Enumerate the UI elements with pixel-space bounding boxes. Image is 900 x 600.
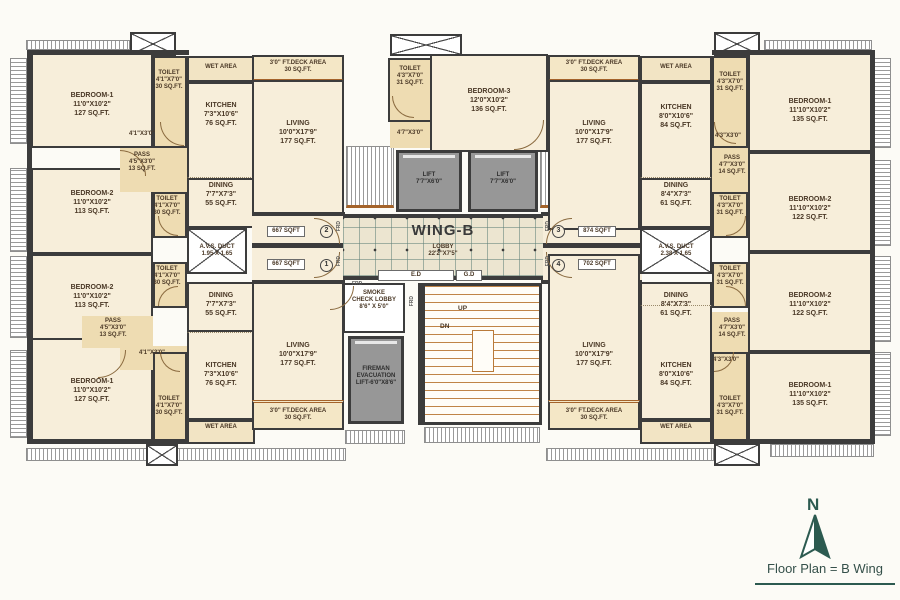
north-arrow-icon <box>795 513 835 559</box>
room-label: BEDROOM-111'0"X10'2"127 SQ.FT. <box>38 92 146 118</box>
chajja-hatch <box>424 427 540 443</box>
room-label: TOILET4'3"X7'0"31 SQ.FT. <box>706 266 754 288</box>
room-label: PASS4'7"X3'0"14 SQ.FT. <box>710 318 754 340</box>
frd-label: FRD <box>545 256 551 266</box>
fireman-lift-label: FIREMANEVACUATIONLIFT-6'0"X8'6" <box>346 366 406 388</box>
flat-area-tag: 667 SQFT <box>267 226 305 237</box>
room-living-left-top <box>252 80 344 230</box>
room-label: TOILET4'1"X7'0"30 SQ.FT. <box>142 70 196 92</box>
room-label: PASS4'5"X3'0"13 SQ.FT. <box>80 318 146 340</box>
room-living-right-top <box>548 80 640 230</box>
room-label: LIVING10'0"X17'9"177 SQ.FT. <box>548 120 640 146</box>
room-label: TOILET4'3"X7'0"31 SQ.FT. <box>706 396 754 418</box>
flat-area-tag: 667 SQFT <box>267 259 305 270</box>
room-label: WET AREA <box>187 64 255 71</box>
stair-landing <box>472 330 494 372</box>
compass-north-letter: N <box>807 495 819 515</box>
room-label: LIVING10'0"X17'9"177 SQ.FT. <box>548 342 640 368</box>
lift-label: LIFT7'7"X6'0" <box>470 172 536 186</box>
wall <box>712 439 875 444</box>
wall <box>418 283 423 425</box>
passage-label: 4'3"X3'0" <box>700 133 756 140</box>
room-label: LIVING10'0"X17'9"177 SQ.FT. <box>252 342 344 368</box>
room-label: TOILET4'3"X7'0"31 SQ.FT. <box>706 72 754 94</box>
vent-shaft <box>390 34 462 56</box>
room-label: DINING8'4"X7'3"61 SQ.FT. <box>640 182 712 208</box>
passage-label: 4'1"X3'0" <box>112 131 172 138</box>
room-label: BEDROOM-111'0"X10'2"127 SQ.FT. <box>38 378 146 404</box>
flat-number-badge: 3 <box>552 225 565 238</box>
duct-label: A.V.S. DUCT1.95 X 1.65 <box>184 244 250 258</box>
deck-label: 3'0" FT.DECK AREA30 SQ.FT. <box>252 408 344 422</box>
balcony-hatch <box>10 168 27 252</box>
chajja-hatch <box>770 444 874 457</box>
room-label: DINING7'7"X7'3"55 SQ.FT. <box>187 292 255 318</box>
flat-number-badge: 4 <box>552 259 565 272</box>
entry-corridor-left <box>252 212 345 284</box>
room-label: KITCHEN8'0"X10'6"84 SQ.FT. <box>640 362 712 388</box>
room-label: KITCHEN7'3"X10'6"76 SQ.FT. <box>187 102 255 128</box>
garbage-duct-tag: G.D <box>456 270 482 281</box>
room-label: WET AREA <box>640 64 712 71</box>
room-label: BEDROOM-111'10"X10'2"135 SQ.FT. <box>755 382 865 408</box>
passage-label: 4'7"X3'0" <box>386 130 434 137</box>
frd-label: FRD <box>352 281 362 287</box>
room-label: TOILET4'3"X7'0"31 SQ.FT. <box>386 66 434 88</box>
frd-label: FRD <box>336 256 342 266</box>
stair-dn-label: DN <box>440 323 449 330</box>
flat-number-badge: 2 <box>320 225 333 238</box>
floor-plan-canvas: BEDROOM-111'0"X10'2"127 SQ.FT. BEDROOM-2… <box>0 0 900 600</box>
deck-label: 3'0" FT.DECK AREA30 SQ.FT. <box>548 408 640 422</box>
room-label: PASS4'5"X3'0"13 SQ.FT. <box>112 152 172 174</box>
deck-label: 3'0" FT.DECK AREA30 SQ.FT. <box>252 60 344 74</box>
chajja-hatch <box>26 40 130 50</box>
room-label: WET AREA <box>640 424 712 431</box>
compass-block: N Floor Plan = B Wing <box>755 495 895 595</box>
lift-label: LIFT7'7"X6'0" <box>398 172 460 186</box>
electrical-duct-tag: E.D <box>378 270 454 281</box>
vent-shaft <box>146 444 178 466</box>
lobby-title: WING-B <box>353 222 533 241</box>
room-label: DINING7'7"X7'3"55 SQ.FT. <box>187 182 255 208</box>
wall <box>712 50 875 55</box>
room-label: BEDROOM-211'0"X10'2"113 SQ.FT. <box>38 284 146 310</box>
room-kitchen-left-top <box>187 82 255 178</box>
caption-underline <box>755 583 895 585</box>
room-label: DINING8'4"X7'3"61 SQ.FT. <box>640 292 712 318</box>
balcony-hatch <box>874 160 891 246</box>
balcony-hatch <box>874 352 891 436</box>
room-label: PASS4'7"X3'0"14 SQ.FT. <box>710 155 754 177</box>
wall <box>27 50 189 55</box>
flat-area-tag: 702 SQFT <box>578 259 616 270</box>
room-label: SMOKECHECK LOBBY8'6" X 5'0" <box>341 290 407 312</box>
duct-label: A.V.S. DUCT2.38 X 1.65 <box>640 244 712 258</box>
room-label: KITCHEN8'0"X10'6"84 SQ.FT. <box>640 104 712 130</box>
passage-label: 4'1"X3'0" <box>122 350 182 357</box>
stair-up-label: UP <box>458 305 467 312</box>
wall <box>870 50 875 444</box>
balcony-hatch <box>10 350 27 438</box>
room-label: BEDROOM-111'10"X10'2"135 SQ.FT. <box>755 98 865 124</box>
room-label: KITCHEN7'3"X10'6"76 SQ.FT. <box>187 362 255 388</box>
room-label: TOILET4'3"X7'0"31 SQ.FT. <box>706 196 754 218</box>
flat-area-tag: 874 SQFT <box>578 226 616 237</box>
shaft-hatch <box>346 146 394 208</box>
deck-label: 3'0" FT.DECK AREA30 SQ.FT. <box>548 60 640 74</box>
room-label: BEDROOM-211'0"X10'2"113 SQ.FT. <box>38 190 146 216</box>
chajja-hatch <box>764 40 872 50</box>
vent-shaft <box>714 443 760 466</box>
room-label: BEDROOM-211'10"X10'2"122 SQ.FT. <box>755 292 865 318</box>
wall <box>27 439 189 444</box>
shaft-hatch <box>345 430 405 444</box>
balcony-hatch <box>874 58 891 148</box>
chajja-hatch <box>546 448 714 461</box>
room-label: TOILET4'1"X7'0"30 SQ.FT. <box>142 396 196 418</box>
room-label: BEDROOM-211'10"X10'2"122 SQ.FT. <box>755 196 865 222</box>
lobby-label: LOBBY22'2"X7'5" <box>353 244 533 258</box>
room-label: TOILET4'1"X7'0"30 SQ.FT. <box>140 266 194 288</box>
room-label: TOILET4'1"X7'0"30 SQ.FT. <box>140 196 194 218</box>
frd-label: FRD <box>545 221 551 231</box>
frd-label: FRD <box>336 221 342 231</box>
balcony-hatch <box>10 256 27 338</box>
chajja-hatch <box>26 448 346 461</box>
wall <box>27 50 32 444</box>
room-label: LIVING10'0"X17'9"177 SQ.FT. <box>252 120 344 146</box>
room-label: BEDROOM-312'0"X10'2"136 SQ.FT. <box>434 88 544 114</box>
balcony-hatch <box>10 58 27 144</box>
plan-caption: Floor Plan = B Wing <box>755 561 895 576</box>
frd-label: FRD <box>409 296 415 306</box>
balcony-hatch <box>874 256 891 342</box>
room-label: WET AREA <box>187 424 255 431</box>
flat-number-badge: 1 <box>320 259 333 272</box>
